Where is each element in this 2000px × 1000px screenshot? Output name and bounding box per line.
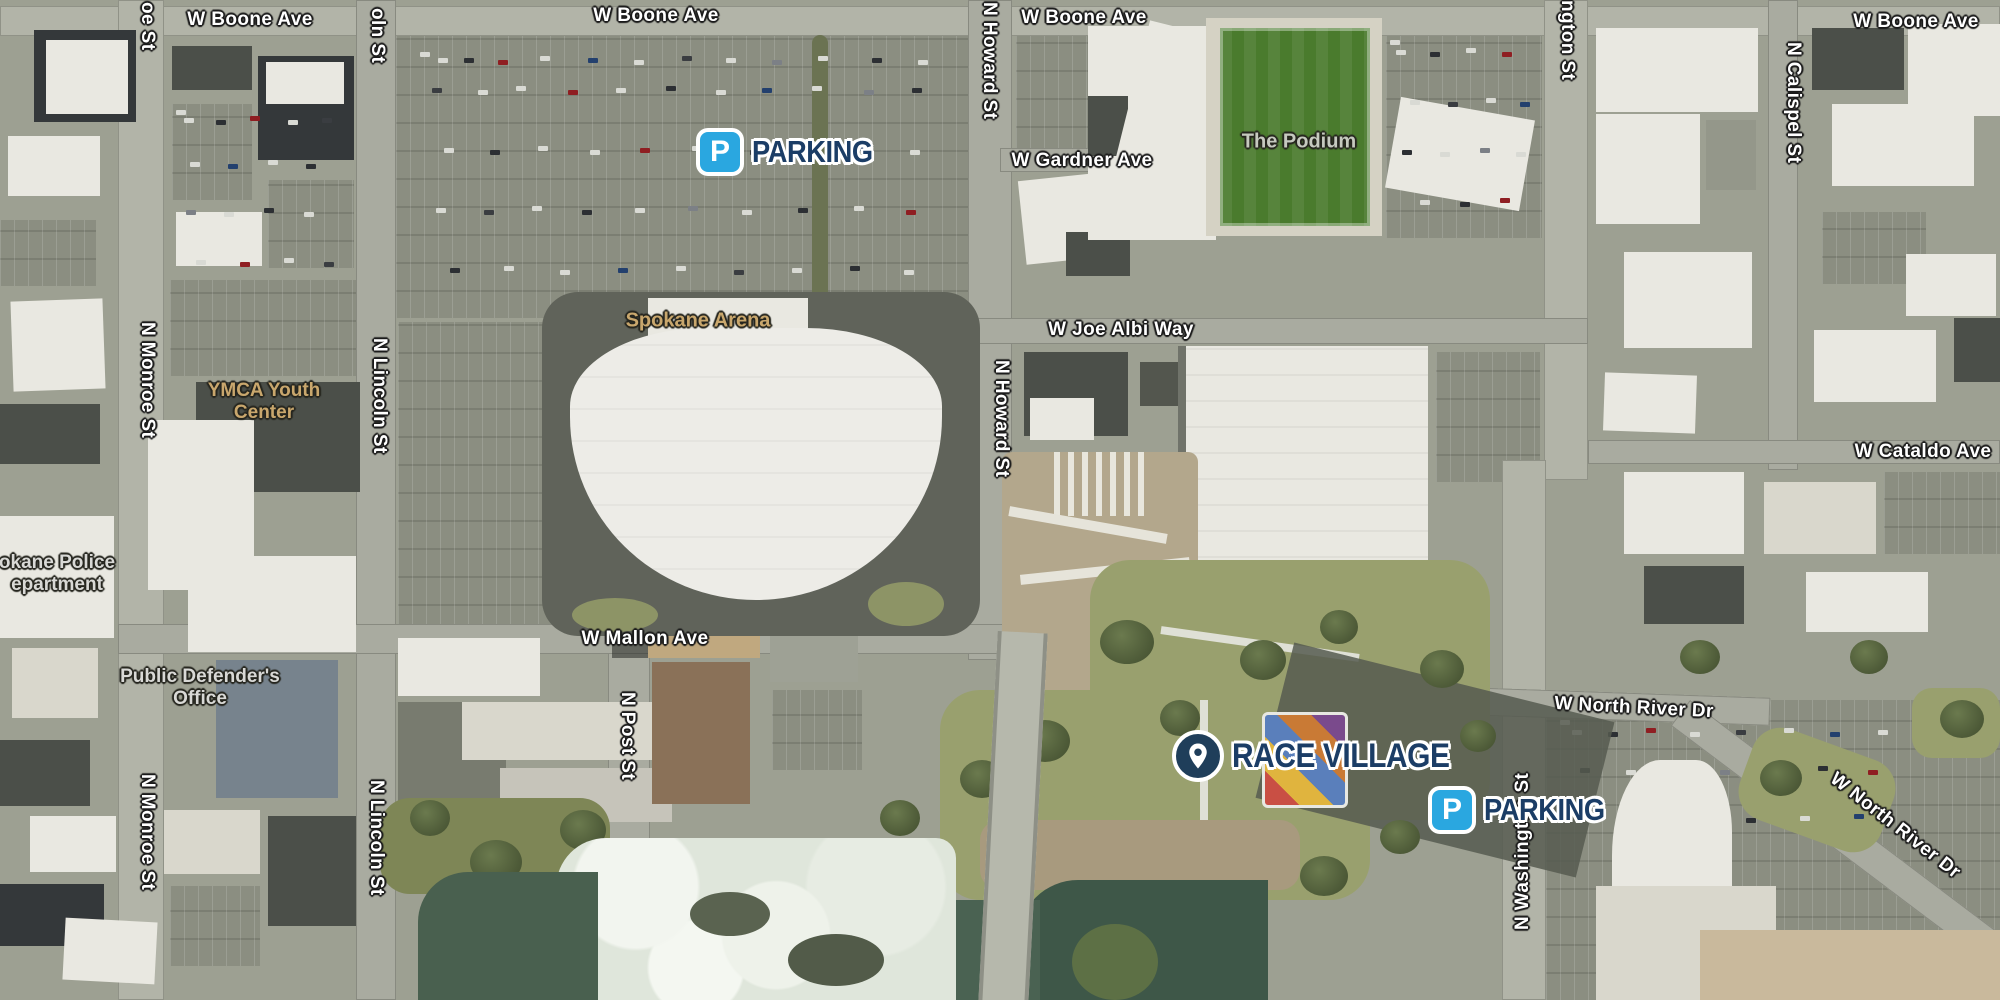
parking-marker-top[interactable]: P PARKING: [696, 128, 889, 176]
street-label-monroe-mid: N Monroe St: [136, 322, 158, 438]
street-label-gardner: W Gardner Ave: [1011, 150, 1152, 172]
location-pin-icon: [1172, 730, 1224, 782]
poi-label-public-defender: Public Defender's Office: [120, 666, 280, 710]
street-label-boone-2: W Boone Ave: [593, 5, 718, 27]
street-label-lincoln-top: oln St: [366, 8, 388, 63]
poi-label-the-podium: The Podium: [1242, 131, 1356, 154]
street-label-howard-top: N Howard St: [978, 2, 1000, 119]
street-label-lincoln-mid: N Lincoln St: [368, 338, 390, 454]
street-label-boone-1: W Boone Ave: [187, 9, 312, 31]
street-label-howard-mid: N Howard St: [990, 360, 1012, 477]
parking-label: PARKING: [752, 134, 873, 170]
street-label-cataldo: W Cataldo Ave: [1855, 441, 1992, 463]
satellite-map[interactable]: W Boone Ave W Boone Ave W Boone Ave W Bo…: [0, 0, 2000, 1000]
street-label-post: N Post St: [616, 692, 638, 780]
poi-label-police: okane Police epartment: [0, 552, 115, 596]
street-label-washington-top: ngton St: [1556, 0, 1578, 80]
race-village-label: RACE VILLAGE: [1232, 737, 1449, 776]
poi-label-spokane-arena: Spokane Arena: [626, 310, 771, 333]
street-label-boone-3: W Boone Ave: [1021, 7, 1146, 29]
street-label-calispel: N Calispel St: [1782, 42, 1804, 163]
parking-label: PARKING: [1484, 792, 1605, 828]
street-label-monroe-top: oe St: [136, 2, 158, 50]
street-label-joe-albi: W Joe Albi Way: [1048, 319, 1194, 341]
street-label-boone-4: W Boone Ave: [1853, 11, 1978, 33]
parking-marker-bottom[interactable]: P PARKING: [1428, 786, 1621, 834]
race-village-marker[interactable]: RACE VILLAGE: [1172, 730, 1479, 782]
poi-label-ymca: YMCA Youth Center: [208, 380, 321, 424]
street-label-monroe-bottom: N Monroe St: [136, 774, 158, 890]
street-label-lincoln-bottom: N Lincoln St: [365, 780, 387, 896]
street-label-mallon: W Mallon Ave: [582, 628, 709, 650]
parking-icon: P: [1428, 786, 1476, 834]
parking-icon: P: [696, 128, 744, 176]
